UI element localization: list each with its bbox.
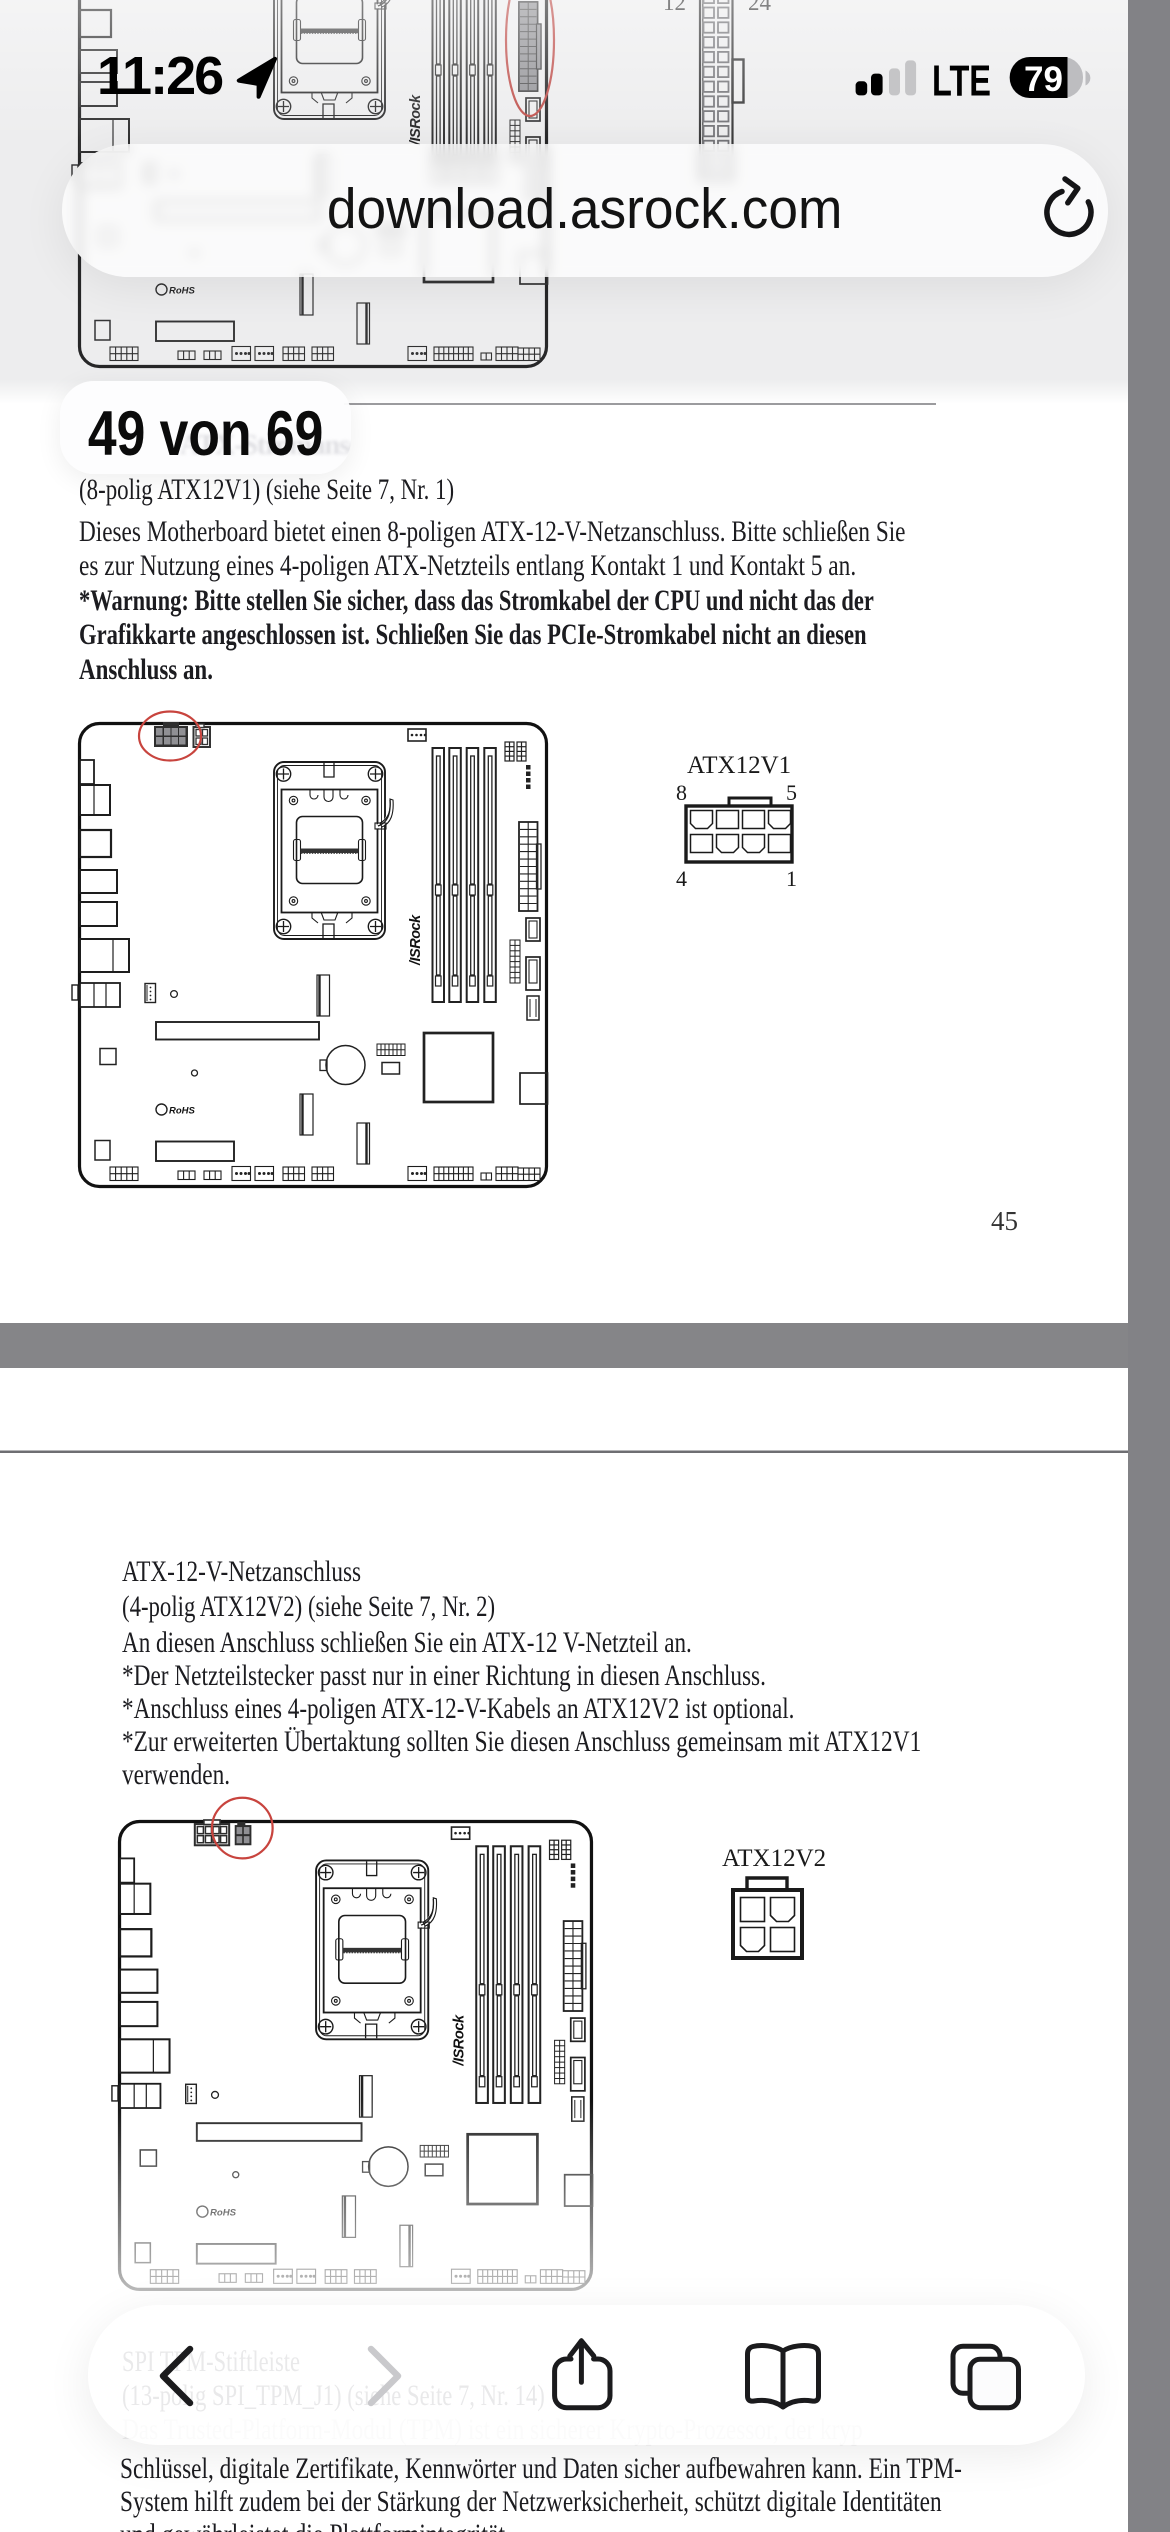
svg-text:ATX12V2: ATX12V2 xyxy=(722,1845,826,1872)
svg-text:1: 1 xyxy=(786,866,797,891)
svg-text:4: 4 xyxy=(676,866,687,891)
svg-text:LTE: LTE xyxy=(932,56,991,105)
svg-text:8: 8 xyxy=(676,780,687,805)
svg-text:79: 79 xyxy=(1024,60,1063,99)
svg-text:ATX12V1: ATX12V1 xyxy=(687,752,791,779)
svg-text:5: 5 xyxy=(786,780,797,805)
